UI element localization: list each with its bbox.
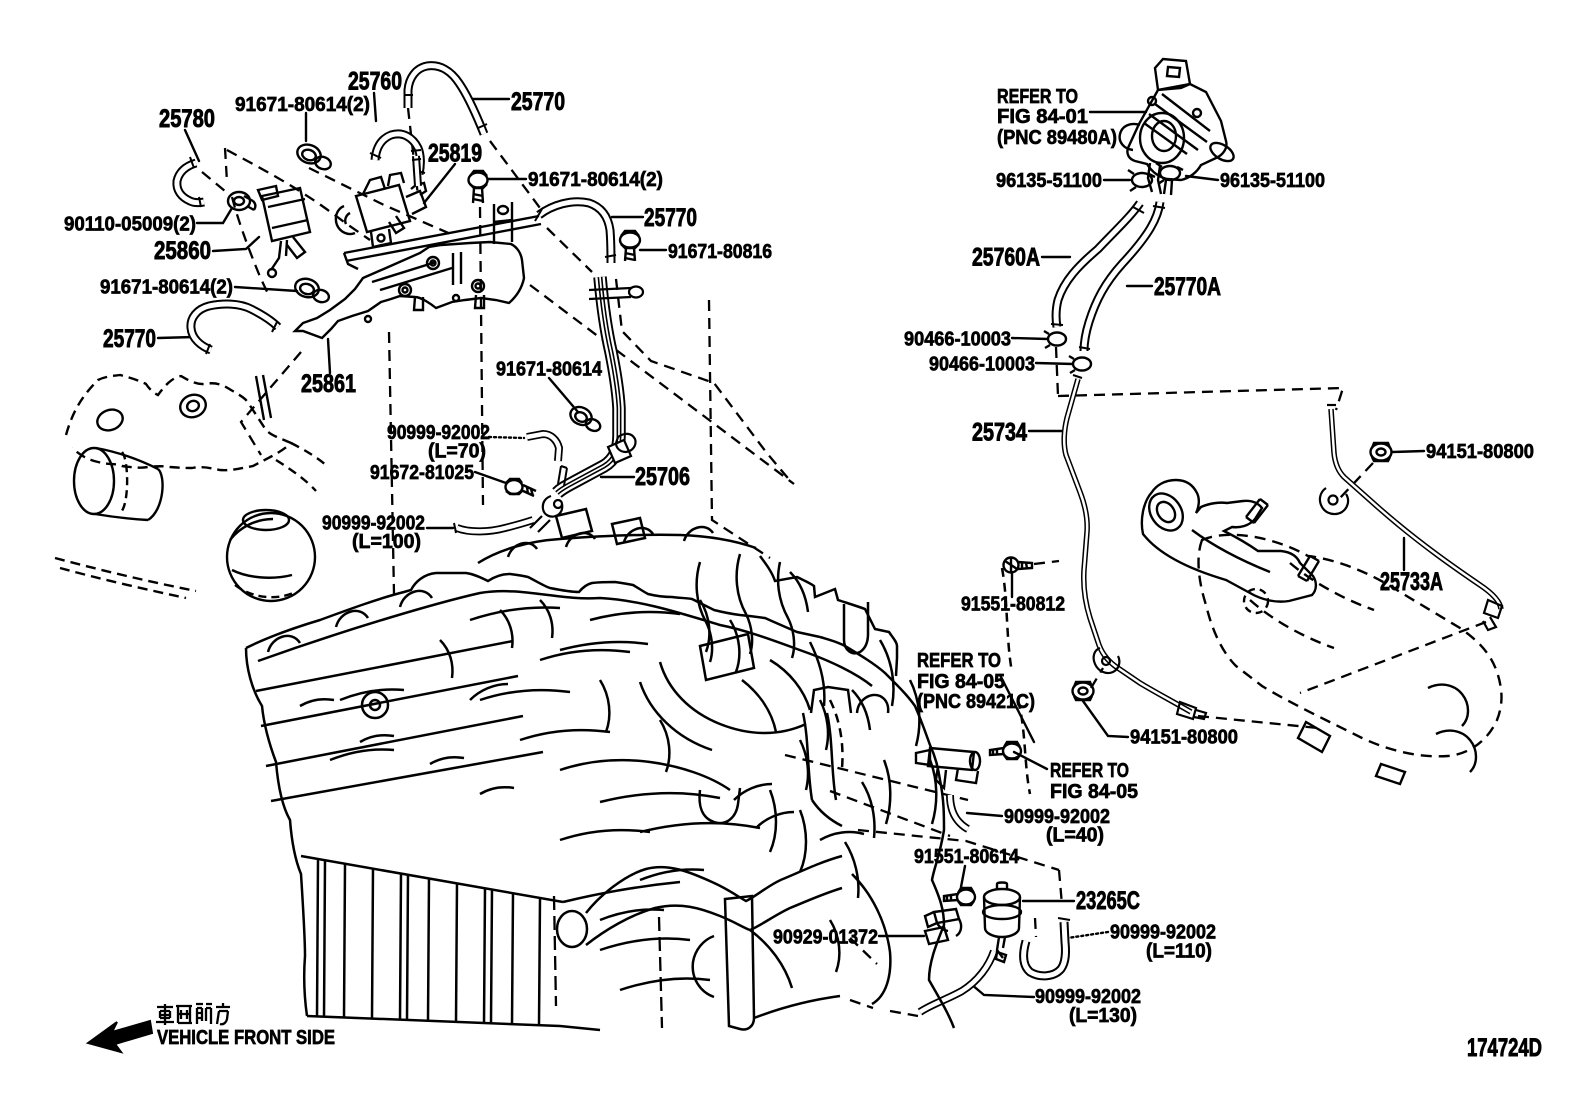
svg-text:REFER TO: REFER TO: [997, 86, 1078, 108]
svg-text:25706: 25706: [635, 463, 690, 491]
svg-text:(PNC 89480A): (PNC 89480A): [997, 127, 1117, 149]
svg-text:90929-01372: 90929-01372: [773, 927, 878, 949]
svg-text:23265C: 23265C: [1076, 887, 1140, 915]
svg-text:(L=130): (L=130): [1069, 1005, 1137, 1027]
svg-text:96135-51100: 96135-51100: [1220, 170, 1325, 192]
svg-text:91671-80614(2): 91671-80614(2): [528, 169, 663, 191]
svg-text:94151-80800: 94151-80800: [1130, 727, 1238, 749]
svg-text:(L=70): (L=70): [428, 441, 486, 463]
svg-text:90110-05009(2): 90110-05009(2): [64, 214, 196, 236]
svg-text:91672-81025: 91672-81025: [370, 462, 474, 484]
svg-text:91551-80614: 91551-80614: [914, 846, 1020, 868]
svg-text:FIG 84-05: FIG 84-05: [1050, 781, 1138, 803]
svg-text:(L=110): (L=110): [1146, 941, 1212, 963]
svg-text:91671-80816: 91671-80816: [668, 241, 772, 263]
svg-text:25860: 25860: [154, 237, 211, 265]
svg-text:25770: 25770: [511, 88, 565, 116]
svg-text:94151-80800: 94151-80800: [1426, 441, 1534, 463]
svg-text:FIG 84-05: FIG 84-05: [917, 671, 1005, 693]
svg-text:25734: 25734: [972, 419, 1027, 447]
svg-text:25733A: 25733A: [1380, 568, 1443, 596]
svg-text:FIG 84-01: FIG 84-01: [997, 106, 1088, 128]
svg-text:(L=40): (L=40): [1046, 825, 1104, 847]
svg-text:(L=100): (L=100): [352, 531, 421, 553]
svg-text:91671-80614(2): 91671-80614(2): [100, 277, 233, 299]
svg-text:90466-10003: 90466-10003: [904, 329, 1011, 351]
svg-text:174724D: 174724D: [1467, 1034, 1542, 1062]
svg-text:REFER TO: REFER TO: [917, 650, 1001, 672]
svg-text:25770: 25770: [103, 325, 156, 353]
svg-text:96135-51100: 96135-51100: [996, 170, 1102, 192]
svg-text:25780: 25780: [159, 105, 215, 133]
svg-text:25861: 25861: [301, 370, 356, 398]
svg-text:VEHICLE FRONT SIDE: VEHICLE FRONT SIDE: [157, 1027, 335, 1049]
svg-text:90466-10003: 90466-10003: [929, 354, 1035, 376]
svg-text:25770: 25770: [644, 204, 697, 232]
svg-text:25760A: 25760A: [972, 244, 1040, 272]
svg-text:REFER TO: REFER TO: [1050, 760, 1129, 782]
svg-text:25760: 25760: [348, 68, 402, 96]
svg-text:25770A: 25770A: [1154, 273, 1221, 301]
svg-text:91671-80614(2): 91671-80614(2): [235, 94, 370, 116]
